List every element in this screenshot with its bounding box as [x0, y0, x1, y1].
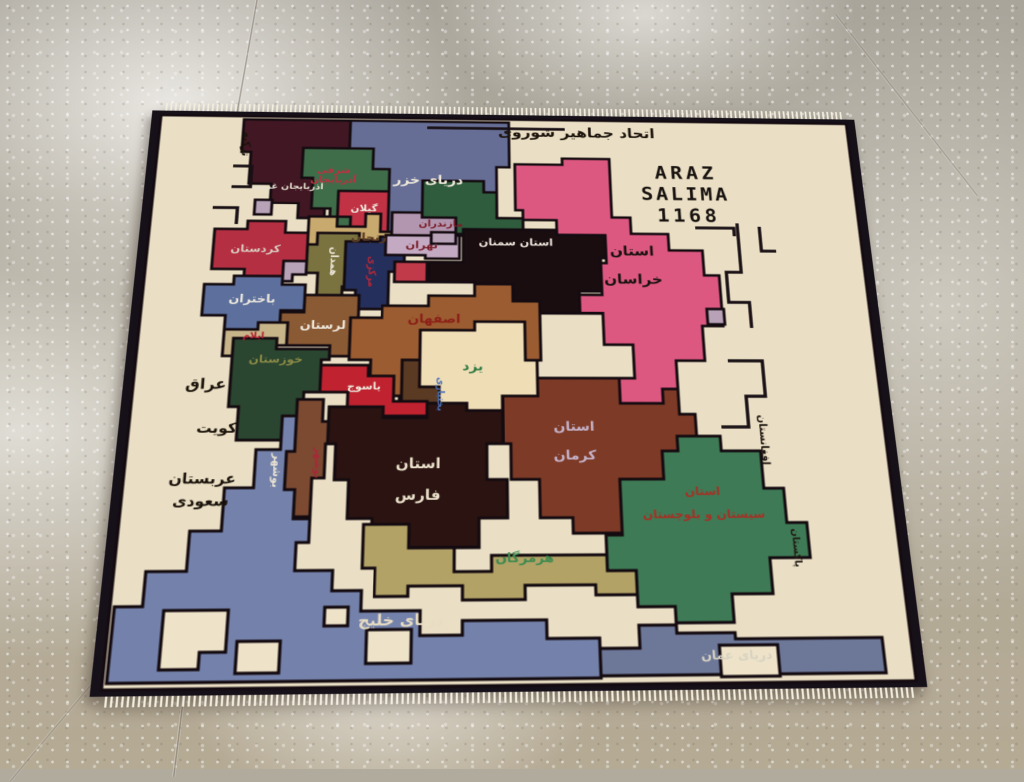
rug-body: اتحاد جماهیر شورویترکیهARAZSALIMA1168دری… — [90, 110, 928, 696]
region-island — [235, 641, 280, 673]
region-qom — [394, 262, 427, 282]
region-island — [366, 629, 412, 663]
region-mauve-patch — [254, 200, 272, 215]
map-rug: اتحاد جماهیر شورویترکیهARAZSALIMA1168دری… — [88, 103, 928, 708]
photo-of-map-rug: { "scene":{ "floor_base_color":"#b1ab9e"… — [0, 0, 1024, 769]
iran-map-graphic — [90, 110, 928, 696]
region-island — [719, 645, 780, 677]
region-mauve-patch — [431, 232, 456, 244]
region-mauve-patch — [707, 309, 725, 324]
region-island — [324, 607, 348, 626]
